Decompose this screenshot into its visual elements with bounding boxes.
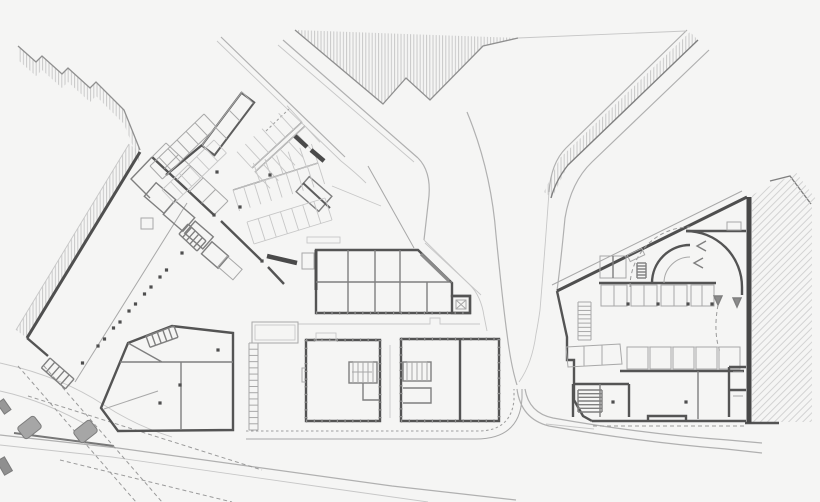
parking-stall-field-column-dot: [215, 170, 218, 173]
pentagon-building-column-dot: [158, 401, 161, 404]
left-hall-column-dot: [81, 361, 84, 364]
pentagon-building-column-dot: [216, 348, 219, 351]
left-hall-column-dot: [134, 302, 137, 305]
left-hall-column-dot: [96, 344, 99, 347]
core-cluster-column-dot: [212, 213, 215, 216]
right-building-column-dot: [611, 400, 614, 403]
left-hall-column-dot: [112, 326, 115, 329]
left-hall-column-dot: [118, 320, 121, 323]
left-hall-column-dot: [165, 268, 168, 271]
parking-stall-field-column-dot: [268, 173, 271, 176]
parking-stall-field-column-dot: [238, 205, 241, 208]
right-building-column-dot: [656, 302, 659, 305]
left-hall-column-dot: [180, 251, 183, 254]
left-hall-column-dot: [103, 337, 106, 340]
left-hall-column-dot: [127, 309, 130, 312]
right-building-column-dot: [684, 400, 687, 403]
pentagon-building-column-dot: [178, 383, 181, 386]
site-plan-drawing: [0, 0, 820, 502]
left-hall-column-dot: [149, 285, 152, 288]
left-hall-column-dot: [158, 275, 161, 278]
core-cluster-column-dot: [260, 259, 263, 262]
floor-plan-page: [0, 0, 820, 502]
neighbor-parcel-east-hatch: [745, 176, 812, 423]
right-building-column-dot: [686, 302, 689, 305]
right-building-column-dot: [626, 302, 629, 305]
neighbor-parcel-east-hatch-hatch: [752, 176, 812, 422]
right-building-column-dot: [710, 302, 713, 305]
left-hall-column-dot: [143, 292, 146, 295]
